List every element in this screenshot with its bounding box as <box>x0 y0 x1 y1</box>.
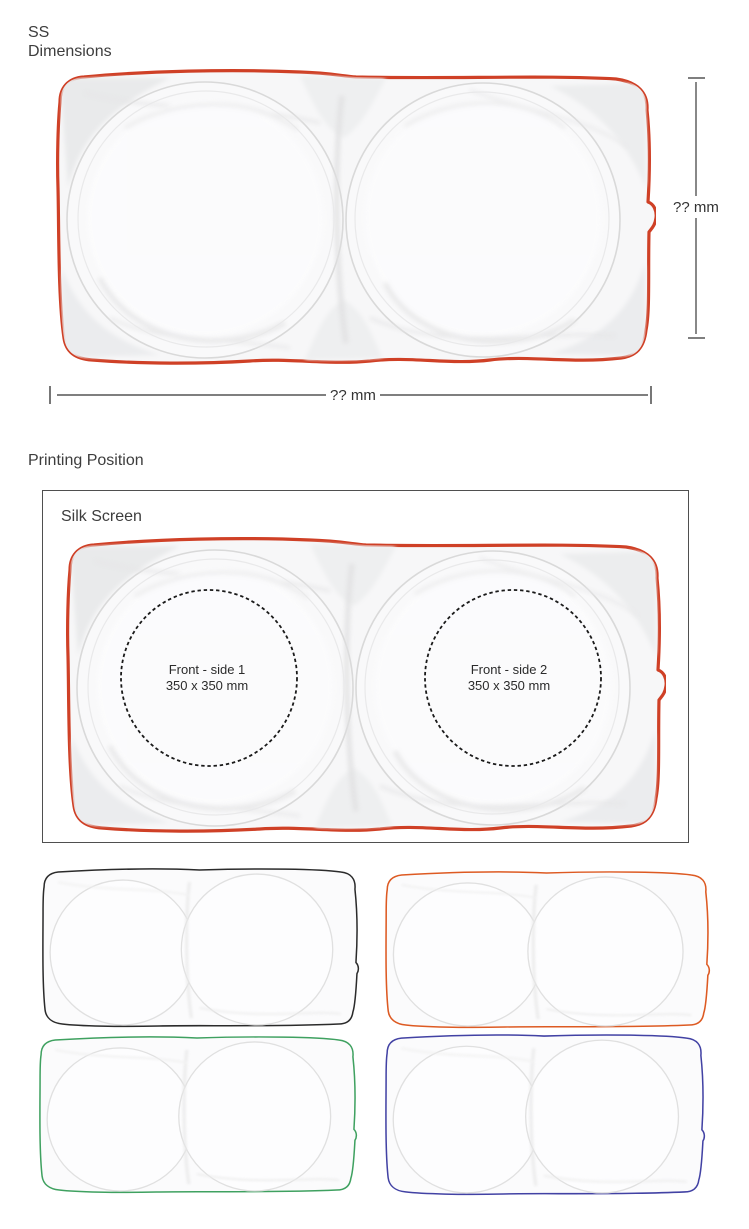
svg-text:?? mm: ?? mm <box>673 199 719 216</box>
svg-text:?? mm: ?? mm <box>330 387 376 404</box>
